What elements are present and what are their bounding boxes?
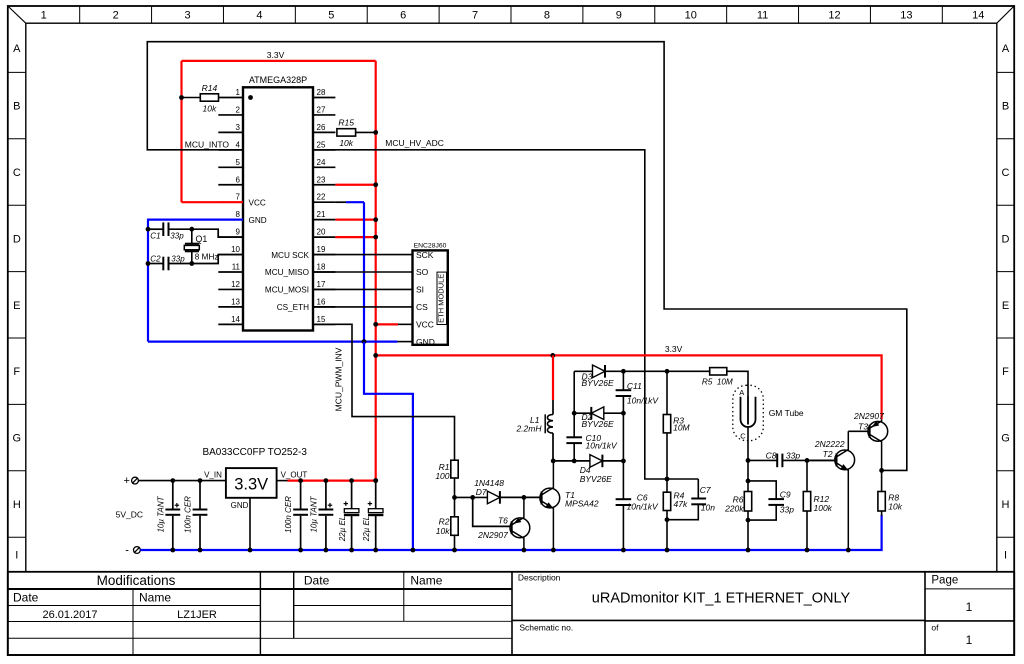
svg-text:10M: 10M <box>673 423 690 433</box>
svg-text:5: 5 <box>328 10 334 22</box>
svg-text:10n/1kV: 10n/1kV <box>627 501 660 511</box>
svg-text:6: 6 <box>236 175 241 184</box>
svg-text:10: 10 <box>685 10 697 22</box>
svg-text:C8: C8 <box>766 450 777 460</box>
svg-text:A: A <box>1002 43 1010 55</box>
svg-text:BYV26E: BYV26E <box>580 474 612 484</box>
svg-text:3.3V: 3.3V <box>665 344 683 354</box>
svg-text:14: 14 <box>231 315 240 324</box>
svg-text:F: F <box>13 366 20 378</box>
svg-text:ENC28J60: ENC28J60 <box>414 243 447 250</box>
svg-text:T6: T6 <box>498 515 508 525</box>
svg-text:3.3V: 3.3V <box>267 50 285 60</box>
svg-text:7: 7 <box>472 10 478 22</box>
svg-text:10k: 10k <box>888 502 902 512</box>
svg-text:11: 11 <box>757 10 768 22</box>
svg-text:T2: T2 <box>823 449 833 459</box>
svg-text:Name: Name <box>410 574 442 588</box>
svg-text:MCU_HV_ADC: MCU_HV_ADC <box>385 138 444 148</box>
svg-text:C1: C1 <box>150 231 160 240</box>
svg-text:20: 20 <box>317 228 326 237</box>
svg-text:V_IN: V_IN <box>204 471 222 480</box>
svg-text:100k: 100k <box>814 503 833 513</box>
svg-text:C11: C11 <box>627 381 642 391</box>
svg-text:ATMEGA328P: ATMEGA328P <box>249 75 307 85</box>
svg-text:H: H <box>1002 499 1010 511</box>
svg-text:SCK: SCK <box>416 250 434 260</box>
svg-text:VCC: VCC <box>249 198 266 207</box>
svg-text:T3: T3 <box>858 421 868 431</box>
svg-text:28: 28 <box>317 88 326 97</box>
svg-text:G: G <box>1001 433 1010 445</box>
svg-text:BYV26E: BYV26E <box>582 378 614 388</box>
svg-text:2: 2 <box>113 10 119 22</box>
svg-text:6: 6 <box>400 10 406 22</box>
svg-text:VCC: VCC <box>416 320 434 330</box>
svg-text:3: 3 <box>236 123 241 132</box>
svg-text:F: F <box>1002 366 1009 378</box>
svg-text:10: 10 <box>231 245 240 254</box>
svg-text:13: 13 <box>231 297 240 306</box>
svg-text:23: 23 <box>317 175 326 184</box>
svg-text:8 MHz: 8 MHz <box>195 252 219 261</box>
svg-text:MCU_MOSI: MCU_MOSI <box>265 286 309 295</box>
svg-text:11: 11 <box>232 263 241 272</box>
svg-text:47k: 47k <box>674 499 688 509</box>
svg-text:2N2907: 2N2907 <box>477 530 508 540</box>
svg-text:10n/1kV: 10n/1kV <box>627 396 660 406</box>
svg-text:SI: SI <box>416 285 424 295</box>
svg-text:I: I <box>15 550 18 562</box>
svg-text:10k: 10k <box>339 138 353 148</box>
svg-text:26.01.2017: 26.01.2017 <box>42 609 97 621</box>
svg-text:Page: Page <box>931 575 958 587</box>
svg-text:1: 1 <box>966 600 973 614</box>
svg-text:MCU_INTO: MCU_INTO <box>185 139 230 149</box>
svg-text:E: E <box>1002 300 1009 312</box>
svg-text:26: 26 <box>317 123 326 132</box>
svg-text:16: 16 <box>317 297 326 306</box>
svg-text:100n CER: 100n CER <box>184 496 193 533</box>
svg-text:33p: 33p <box>170 231 184 240</box>
svg-text:2.2mH: 2.2mH <box>515 424 542 434</box>
svg-text:3.3V: 3.3V <box>234 476 268 494</box>
svg-text:V_OUT: V_OUT <box>281 471 308 480</box>
svg-text:H: H <box>13 499 21 511</box>
svg-text:24: 24 <box>317 158 326 167</box>
svg-text:GND: GND <box>416 337 435 347</box>
svg-text:220k: 220k <box>724 504 744 514</box>
svg-text:C7: C7 <box>700 485 711 495</box>
svg-text:Q1: Q1 <box>196 234 208 244</box>
svg-text:19: 19 <box>317 245 326 254</box>
svg-text:GM Tube: GM Tube <box>769 408 804 418</box>
svg-text:12: 12 <box>231 280 240 289</box>
svg-text:GND: GND <box>249 216 267 225</box>
svg-text:C2: C2 <box>150 255 161 264</box>
svg-text:D: D <box>13 233 21 245</box>
svg-text:uRADmonitor KIT_1 ETHERNET_ONL: uRADmonitor KIT_1 ETHERNET_ONLY <box>592 590 851 606</box>
svg-text:10k: 10k <box>436 526 450 536</box>
svg-text:MCU_PWM_INV: MCU_PWM_INV <box>334 347 344 411</box>
svg-text:5: 5 <box>236 158 241 167</box>
svg-text:CS_ETH: CS_ETH <box>277 303 309 312</box>
svg-text:10k: 10k <box>203 104 217 114</box>
svg-text:4: 4 <box>236 140 241 149</box>
svg-text:12: 12 <box>828 10 840 22</box>
svg-text:22µ EL: 22µ EL <box>362 516 371 543</box>
svg-text:G: G <box>13 433 22 445</box>
svg-text:10µ TANT: 10µ TANT <box>310 495 319 532</box>
svg-text:ETH MODULE: ETH MODULE <box>436 274 445 323</box>
svg-text:2N2907: 2N2907 <box>853 411 884 421</box>
svg-text:of: of <box>931 623 939 633</box>
svg-text:8: 8 <box>236 210 241 219</box>
svg-text:22µ EL: 22µ EL <box>338 516 347 543</box>
svg-text:E: E <box>13 300 20 312</box>
svg-text:GND: GND <box>231 501 249 510</box>
svg-text:-: - <box>125 544 129 556</box>
svg-text:C: C <box>1002 167 1010 179</box>
svg-text:Date: Date <box>13 591 39 605</box>
svg-text:D: D <box>1002 233 1010 245</box>
svg-text:A: A <box>13 43 21 55</box>
svg-text:14: 14 <box>972 10 984 22</box>
svg-text:Date: Date <box>304 574 330 588</box>
svg-text:18: 18 <box>317 263 326 272</box>
svg-text:Schematic no.: Schematic no. <box>519 623 573 633</box>
svg-text:Description: Description <box>518 572 561 582</box>
svg-text:4: 4 <box>256 10 262 22</box>
svg-text:25: 25 <box>317 140 326 149</box>
svg-text:13: 13 <box>900 10 912 22</box>
svg-text:BYV26E: BYV26E <box>582 419 614 429</box>
svg-text:CS: CS <box>416 302 428 312</box>
svg-text:B: B <box>13 101 20 113</box>
svg-text:3: 3 <box>184 10 190 22</box>
svg-text:SO: SO <box>416 267 429 277</box>
svg-text:Name: Name <box>139 591 171 605</box>
svg-text:27: 27 <box>317 105 326 114</box>
svg-text:15: 15 <box>317 315 326 324</box>
svg-text:B: B <box>1002 101 1009 113</box>
svg-text:5V_DC: 5V_DC <box>116 509 143 519</box>
svg-text:D7: D7 <box>476 487 487 497</box>
svg-text:2N2222: 2N2222 <box>814 439 845 449</box>
svg-text:1: 1 <box>236 88 241 97</box>
svg-text:LZ1JER: LZ1JER <box>177 609 217 621</box>
svg-text:2: 2 <box>236 105 241 114</box>
svg-text:7: 7 <box>236 193 241 202</box>
svg-text:22: 22 <box>317 193 326 202</box>
svg-text:R5 10M: R5 10M <box>702 377 733 386</box>
svg-text:33p: 33p <box>786 450 800 460</box>
svg-text:33p: 33p <box>171 255 185 264</box>
svg-text:R14: R14 <box>202 83 218 93</box>
svg-text:100n CER: 100n CER <box>284 496 293 533</box>
svg-text:BA033CC0FP TO252-3: BA033CC0FP TO252-3 <box>202 447 307 458</box>
svg-text:1: 1 <box>966 633 973 647</box>
svg-text:9: 9 <box>616 10 622 22</box>
svg-text:MPSA42: MPSA42 <box>565 499 599 509</box>
svg-text:C9: C9 <box>780 490 791 500</box>
svg-text:10µ TANT: 10µ TANT <box>156 495 165 532</box>
svg-text:100: 100 <box>435 471 449 481</box>
svg-text:17: 17 <box>317 280 326 289</box>
svg-text:Modifications: Modifications <box>97 573 176 588</box>
svg-text:I: I <box>1004 550 1007 562</box>
svg-text:33p: 33p <box>780 505 794 515</box>
svg-text:R15: R15 <box>338 118 354 128</box>
svg-text:MCU SCK: MCU SCK <box>271 251 309 260</box>
svg-text:+: + <box>124 475 130 487</box>
svg-text:A: A <box>739 388 744 397</box>
svg-text:10n: 10n <box>701 503 715 513</box>
svg-text:9: 9 <box>236 228 241 237</box>
svg-text:C: C <box>740 432 746 441</box>
svg-text:C: C <box>13 167 21 179</box>
svg-text:8: 8 <box>544 10 550 22</box>
svg-text:21: 21 <box>317 210 326 219</box>
svg-text:MCU_MISO: MCU_MISO <box>265 268 309 277</box>
svg-text:1: 1 <box>41 10 47 22</box>
svg-text:10n/1kV: 10n/1kV <box>586 440 619 450</box>
